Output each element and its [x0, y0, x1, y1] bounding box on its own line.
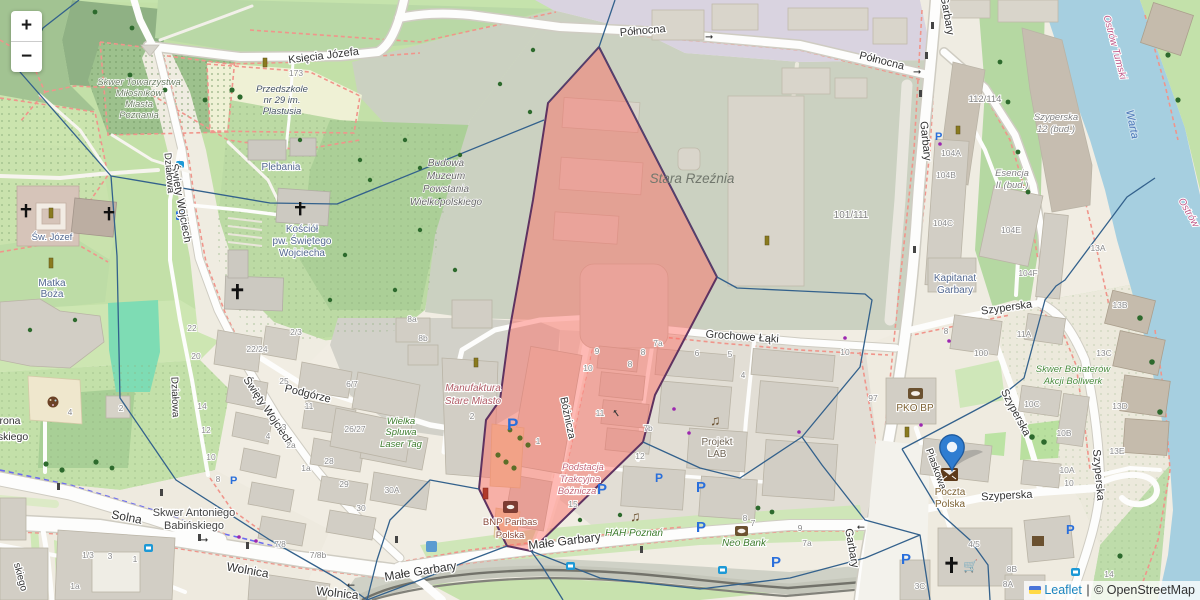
svg-text:7a: 7a: [653, 338, 663, 348]
svg-text:104E: 104E: [1001, 225, 1021, 235]
svg-text:Garbary: Garbary: [937, 285, 973, 296]
svg-text:Kościół: Kościół: [286, 224, 319, 235]
svg-text:Babińskiego: Babińskiego: [164, 520, 224, 532]
svg-text:104B: 104B: [936, 170, 956, 180]
svg-text:10: 10: [206, 452, 216, 462]
svg-text:Poczta: Poczta: [935, 487, 966, 498]
svg-text:104A: 104A: [941, 148, 961, 158]
svg-text:8B: 8B: [1007, 564, 1018, 574]
svg-text:22: 22: [187, 323, 197, 333]
svg-text:Poznania: Poznania: [119, 110, 159, 121]
svg-text:3: 3: [282, 422, 287, 432]
svg-text:7a: 7a: [802, 538, 812, 548]
svg-text:22/24: 22/24: [246, 344, 268, 354]
svg-text:♫: ♫: [710, 412, 721, 428]
svg-text:➞: ➞: [857, 521, 865, 532]
svg-text:25: 25: [279, 376, 289, 386]
svg-text:8: 8: [628, 359, 633, 369]
svg-text:Boża: Boża: [41, 289, 64, 300]
svg-text:Stare Miasto: Stare Miasto: [445, 396, 502, 407]
svg-text:8: 8: [216, 474, 221, 484]
svg-text:P: P: [696, 479, 706, 496]
svg-text:1: 1: [133, 554, 138, 564]
svg-text:14: 14: [197, 401, 207, 411]
svg-text:Polska: Polska: [496, 530, 525, 541]
svg-text:Św. Józef: Św. Józef: [32, 231, 73, 243]
svg-text:8b: 8b: [418, 333, 428, 343]
svg-text:12 (bud.): 12 (bud.): [1037, 124, 1075, 135]
svg-text:104F: 104F: [1018, 268, 1037, 278]
svg-text:4: 4: [68, 407, 73, 417]
svg-text:HAH Poznań: HAH Poznań: [605, 528, 663, 539]
svg-text:173: 173: [289, 68, 303, 78]
svg-text:2: 2: [470, 411, 475, 421]
svg-text:5: 5: [728, 349, 733, 359]
svg-text:13B: 13B: [1112, 300, 1127, 310]
svg-text:9: 9: [595, 346, 600, 356]
svg-text:13A: 13A: [1090, 243, 1105, 253]
svg-text:1: 1: [536, 436, 541, 446]
svg-text:4: 4: [741, 370, 746, 380]
svg-text:nr 29 im.: nr 29 im.: [264, 95, 301, 106]
svg-text:Projekt: Projekt: [701, 437, 732, 448]
svg-text:Miasta: Miasta: [125, 99, 153, 110]
svg-text:13D: 13D: [1112, 401, 1128, 411]
svg-text:Laser Tag: Laser Tag: [380, 439, 423, 450]
svg-text:2a: 2a: [286, 440, 296, 450]
svg-text:8: 8: [944, 326, 949, 336]
svg-text:1a: 1a: [70, 581, 80, 591]
svg-text:Podstacja: Podstacja: [562, 462, 604, 473]
svg-text:Kapitanat: Kapitanat: [934, 273, 976, 284]
svg-text:10: 10: [840, 347, 850, 357]
svg-text:Skwer Antoniego: Skwer Antoniego: [153, 507, 236, 519]
svg-text:II (bud.): II (bud.): [996, 180, 1029, 191]
svg-text:8a: 8a: [407, 314, 417, 324]
svg-text:♫: ♫: [630, 508, 641, 524]
svg-text:Manufaktura: Manufaktura: [445, 383, 501, 394]
svg-text:P: P: [771, 554, 781, 571]
svg-text:100: 100: [974, 348, 988, 358]
svg-text:Wielkopolskiego: Wielkopolskiego: [410, 197, 483, 208]
svg-text:3C: 3C: [915, 581, 926, 591]
svg-text:8A: 8A: [1003, 579, 1014, 589]
svg-text:10A: 10A: [1059, 465, 1074, 475]
svg-text:10B: 10B: [1056, 428, 1071, 438]
svg-text:P: P: [901, 551, 911, 568]
svg-text:P: P: [696, 519, 706, 536]
svg-text:Wielka: Wielka: [387, 416, 415, 427]
svg-text:104C: 104C: [933, 218, 953, 228]
svg-text:pw. Świętego: pw. Świętego: [273, 234, 332, 247]
svg-text:Matka: Matka: [38, 278, 66, 289]
svg-text:Działowa: Działowa: [168, 377, 180, 418]
svg-text:Wojciecha: Wojciecha: [279, 248, 325, 259]
svg-text:Skwer Towarzystwa: Skwer Towarzystwa: [97, 77, 181, 88]
svg-text:Szyperska: Szyperska: [1034, 112, 1078, 123]
svg-text:4: 4: [266, 431, 271, 441]
svg-text:Skwer Bohaterów: Skwer Bohaterów: [1036, 364, 1112, 375]
svg-text:30: 30: [356, 503, 366, 513]
svg-text:Akcji Bollwerk: Akcji Bollwerk: [1043, 376, 1104, 387]
svg-text:20: 20: [191, 351, 201, 361]
svg-text:➞: ➞: [200, 535, 208, 546]
svg-text:Plebania: Plebania: [262, 162, 301, 173]
svg-text:101/111: 101/111: [834, 210, 869, 221]
svg-text:7/8: 7/8: [274, 539, 286, 549]
svg-text:P: P: [230, 475, 237, 487]
svg-text:7/8b: 7/8b: [310, 550, 327, 560]
svg-text:➞: ➞: [705, 32, 713, 43]
svg-text:15: 15: [568, 499, 578, 509]
svg-text:13E: 13E: [1109, 446, 1124, 456]
svg-text:LAB: LAB: [708, 449, 727, 460]
svg-text:8: 8: [641, 347, 646, 357]
svg-text:rona: rona: [0, 415, 21, 427]
svg-text:12: 12: [201, 425, 211, 435]
svg-text:Muzeum: Muzeum: [427, 171, 465, 182]
svg-text:7: 7: [751, 518, 756, 528]
svg-text:1/3: 1/3: [82, 550, 94, 560]
svg-text:skiego: skiego: [0, 431, 28, 443]
svg-text:BNP Paribas: BNP Paribas: [483, 517, 537, 528]
svg-text:4/5: 4/5: [968, 539, 980, 549]
svg-text:Plastusia: Plastusia: [263, 106, 302, 117]
svg-text:Trakcyjna: Trakcyjna: [560, 474, 600, 485]
svg-text:26/27: 26/27: [344, 424, 366, 434]
svg-text:8: 8: [743, 513, 748, 523]
svg-text:28: 28: [324, 456, 334, 466]
svg-text:6: 6: [695, 348, 700, 358]
svg-text:➞: ➞: [913, 67, 921, 78]
svg-text:11A: 11A: [1017, 329, 1032, 339]
svg-text:12: 12: [635, 451, 645, 461]
svg-text:10C: 10C: [1024, 399, 1040, 409]
svg-text:Bóżnicza: Bóżnicza: [558, 486, 597, 497]
svg-text:2: 2: [119, 403, 124, 413]
svg-text:Przedszkole: Przedszkole: [256, 84, 308, 95]
svg-text:30A: 30A: [384, 485, 399, 495]
svg-text:7b: 7b: [643, 423, 653, 433]
svg-text:6/7: 6/7: [346, 379, 358, 389]
svg-text:9: 9: [798, 523, 803, 533]
svg-text:11: 11: [305, 401, 314, 411]
svg-text:13C: 13C: [1096, 348, 1112, 358]
svg-text:Miłośników: Miłośników: [116, 88, 164, 99]
svg-text:P: P: [507, 415, 518, 434]
svg-text:Neo Bank: Neo Bank: [722, 538, 767, 549]
svg-text:Powstania: Powstania: [423, 184, 470, 195]
svg-text:Esencja: Esencja: [995, 168, 1029, 179]
svg-text:P: P: [935, 131, 942, 143]
svg-text:10: 10: [583, 363, 593, 373]
svg-text:97: 97: [868, 393, 878, 403]
svg-text:PKO BP: PKO BP: [896, 403, 934, 414]
svg-text:P: P: [1066, 522, 1075, 537]
svg-text:29: 29: [339, 479, 349, 489]
svg-text:3: 3: [108, 551, 113, 561]
svg-text:10: 10: [1064, 478, 1074, 488]
svg-text:2/3: 2/3: [290, 327, 302, 337]
svg-text:Spluwa: Spluwa: [385, 427, 416, 438]
svg-text:Budowa: Budowa: [428, 158, 465, 169]
svg-text:🛒: 🛒: [963, 559, 978, 573]
svg-text:11: 11: [596, 408, 605, 418]
svg-text:P: P: [655, 471, 663, 485]
svg-text:Polska: Polska: [935, 499, 965, 510]
svg-text:14: 14: [1104, 569, 1114, 579]
svg-text:1a: 1a: [301, 463, 311, 473]
svg-text:112/114: 112/114: [969, 94, 1002, 105]
svg-text:Stara Rzeźnia: Stara Rzeźnia: [650, 171, 735, 186]
